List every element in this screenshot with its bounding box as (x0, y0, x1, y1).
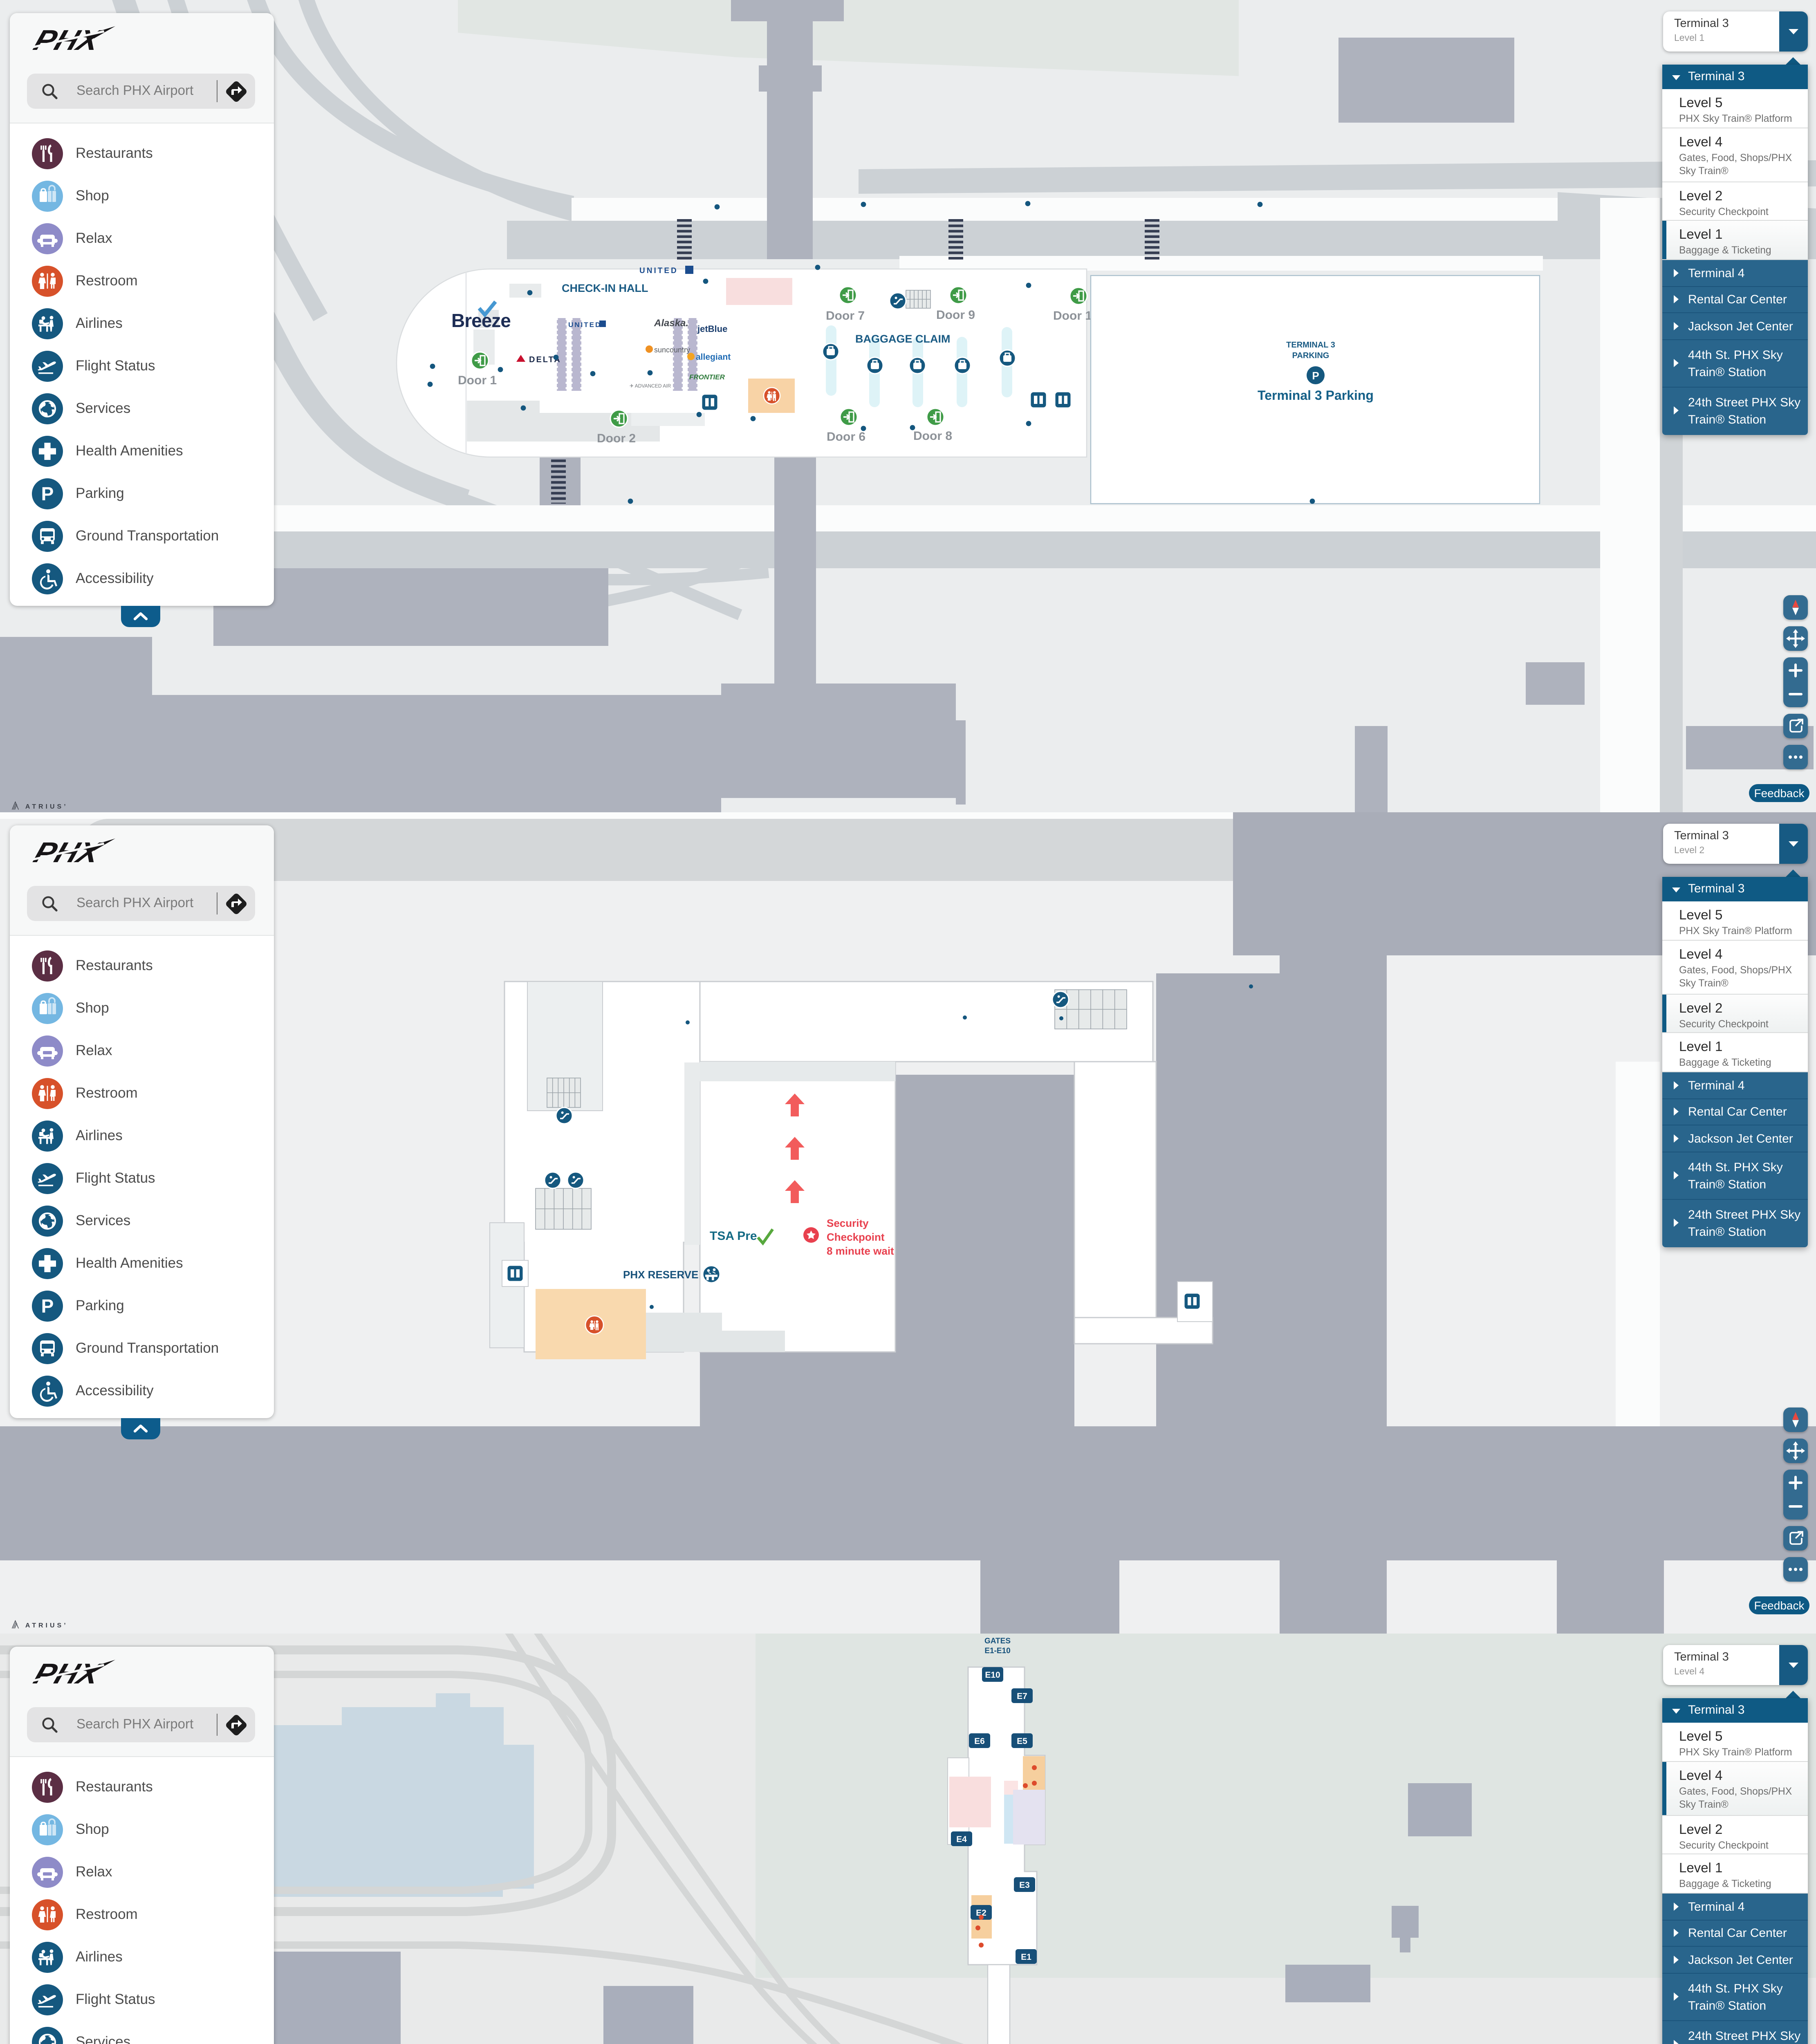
svg-text:FRONTIER: FRONTIER (689, 373, 725, 381)
svg-text:E4: E4 (956, 1835, 967, 1844)
svg-text:P: P (1312, 370, 1319, 382)
svg-text:E5: E5 (1017, 1737, 1027, 1746)
svg-text:Alaska.: Alaska. (654, 318, 688, 329)
svg-text:Door 8: Door 8 (913, 429, 952, 443)
svg-text:E6: E6 (974, 1737, 985, 1746)
svg-text:8 minute wait: 8 minute wait (827, 1245, 894, 1257)
svg-text:Door 1: Door 1 (458, 374, 497, 387)
svg-text:E7: E7 (1017, 1692, 1027, 1701)
svg-text:CHECK-IN HALL: CHECK-IN HALL (562, 282, 648, 294)
svg-text:Door 2: Door 2 (597, 432, 636, 445)
svg-text:Door 6: Door 6 (827, 430, 865, 444)
svg-text:E1: E1 (1021, 1952, 1031, 1962)
svg-text:TERMINAL 3: TERMINAL 3 (1286, 341, 1335, 350)
svg-text:allegiant: allegiant (696, 352, 731, 362)
svg-text:E1-E10: E1-E10 (984, 1647, 1010, 1655)
svg-text:Terminal 3 Parking: Terminal 3 Parking (1258, 388, 1374, 403)
svg-text:Door 7: Door 7 (826, 309, 865, 323)
svg-text:UNITED: UNITED (639, 267, 678, 275)
svg-text:Door 9: Door 9 (936, 308, 975, 322)
svg-text:P: P (41, 1295, 54, 1317)
svg-text:TSA Pre: TSA Pre (710, 1229, 757, 1243)
svg-text:Breeze: Breeze (451, 310, 511, 331)
svg-text:✈ ADVANCED AIR: ✈ ADVANCED AIR (630, 383, 671, 389)
svg-text:E3: E3 (1019, 1880, 1030, 1890)
svg-text:P: P (41, 483, 54, 504)
svg-text:GATES: GATES (984, 1637, 1011, 1645)
svg-text:E10: E10 (985, 1670, 1000, 1680)
svg-text:UNITED: UNITED (568, 321, 601, 329)
svg-text:PHX RESERVE: PHX RESERVE (623, 1269, 698, 1281)
svg-text:Security: Security (827, 1217, 869, 1229)
svg-text:suncountry: suncountry (654, 346, 690, 354)
svg-text:Checkpoint: Checkpoint (827, 1231, 885, 1243)
svg-text:PARKING: PARKING (1292, 351, 1329, 360)
svg-text:jetBlue: jetBlue (697, 324, 727, 334)
svg-text:BAGGAGE CLAIM: BAGGAGE CLAIM (855, 333, 951, 345)
